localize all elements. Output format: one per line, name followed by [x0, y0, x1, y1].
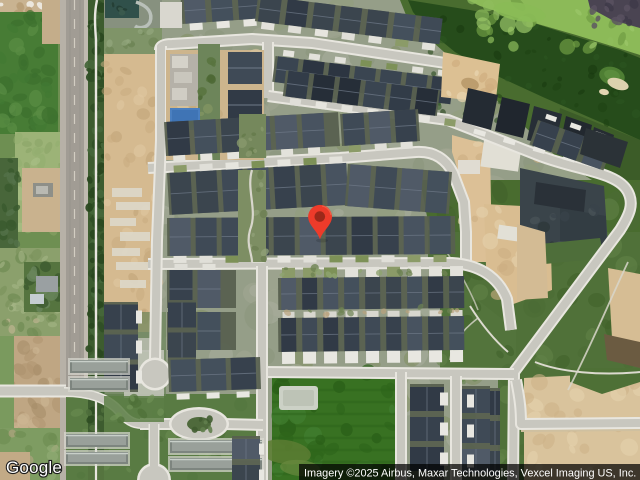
svg-text:Imagery ©2025 Airbus, Maxar Te: Imagery ©2025 Airbus, Maxar Technologies… — [304, 468, 636, 480]
svg-text:Google: Google — [6, 458, 62, 477]
